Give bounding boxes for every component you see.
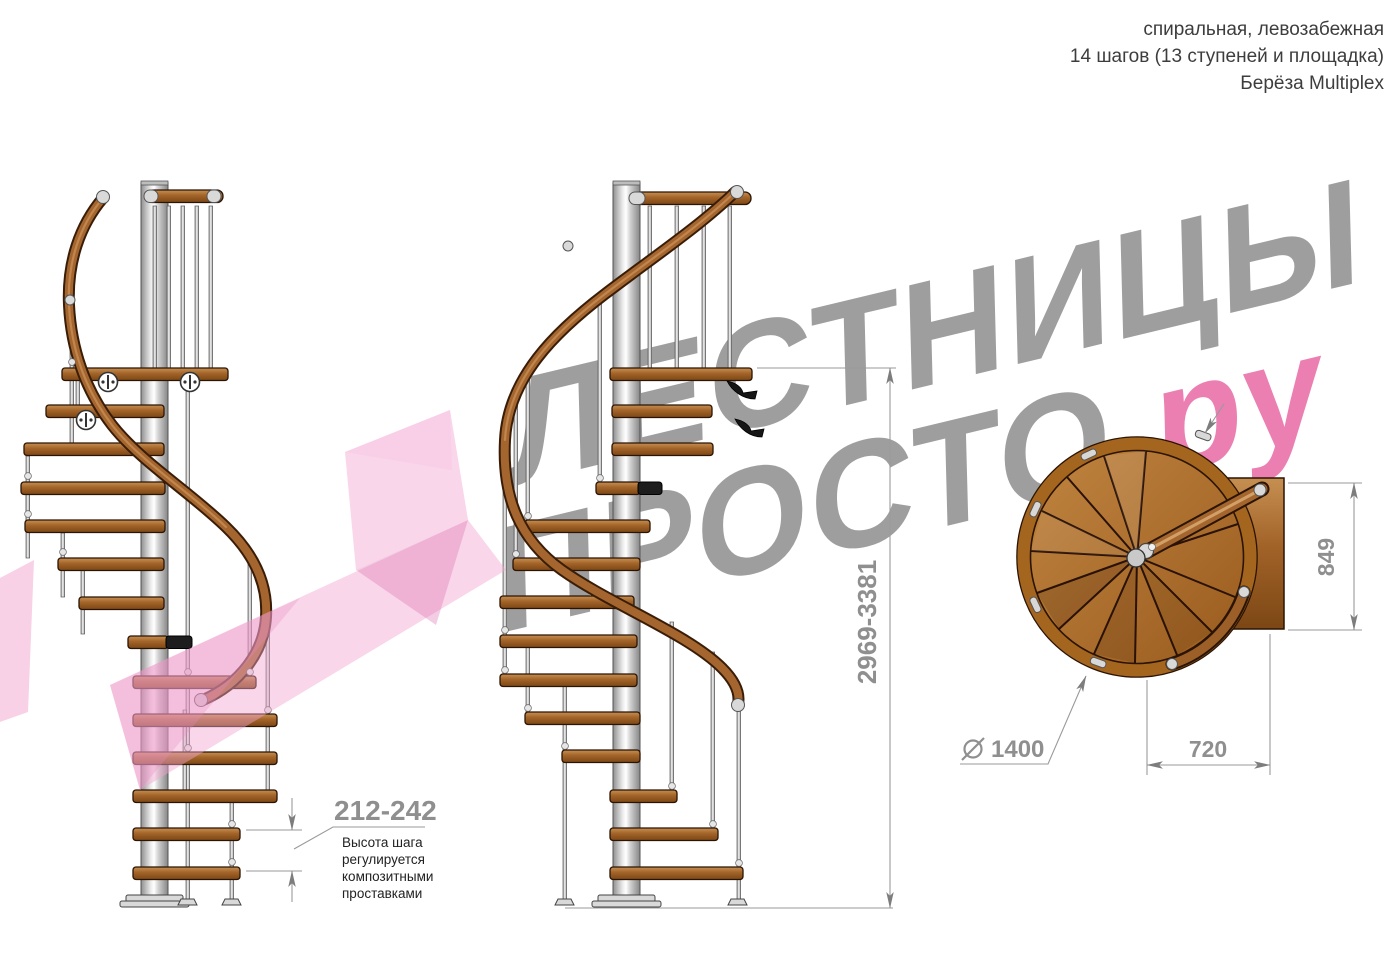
- dimension-total-height: 2969-3381: [757, 368, 896, 908]
- svg-text:композитными: композитными: [342, 869, 433, 884]
- landing-bracket: [735, 419, 764, 437]
- title-line-type: спиральная, левозабежная: [1070, 16, 1384, 43]
- step-height-label: 212-242: [334, 795, 437, 826]
- dimension-step-height: 212-242 Высота шага регулируется компози…: [246, 795, 437, 902]
- page: ЛЕСТНИЦЫ ПРОСТО.ру: [0, 0, 1400, 955]
- title-line-steps: 14 шагов (13 ступеней и площадка): [1070, 43, 1384, 70]
- landing-bracket: [727, 381, 757, 399]
- landing-board: [610, 368, 752, 381]
- total-height-label: 2969-3381: [852, 560, 882, 684]
- svg-text:регулируется: регулируется: [342, 852, 425, 867]
- left-elevation-view: [21, 181, 277, 907]
- svg-text:проставками: проставками: [342, 886, 422, 901]
- column-top-cap: [141, 181, 168, 185]
- diameter-label: 1400: [991, 736, 1044, 763]
- drawing-title-block: спиральная, левозабежная 14 шагов (13 ст…: [1070, 16, 1384, 97]
- plan-center-column: [1127, 549, 1145, 567]
- landing-width-label: 720: [1189, 736, 1227, 762]
- middle-elevation-view: [500, 181, 764, 907]
- step-height-note: Высота шага: [342, 835, 423, 850]
- pink-arrow-watermark: [0, 410, 506, 790]
- dimension-849: 849: [1288, 483, 1362, 630]
- plan-view: [1017, 430, 1284, 677]
- landing-length-label: 849: [1313, 538, 1339, 576]
- title-line-material: Берёза Multiplex: [1070, 70, 1384, 97]
- staircase-technical-drawing: 2969-3381 212-242 Высота шага регулирует…: [0, 0, 1400, 955]
